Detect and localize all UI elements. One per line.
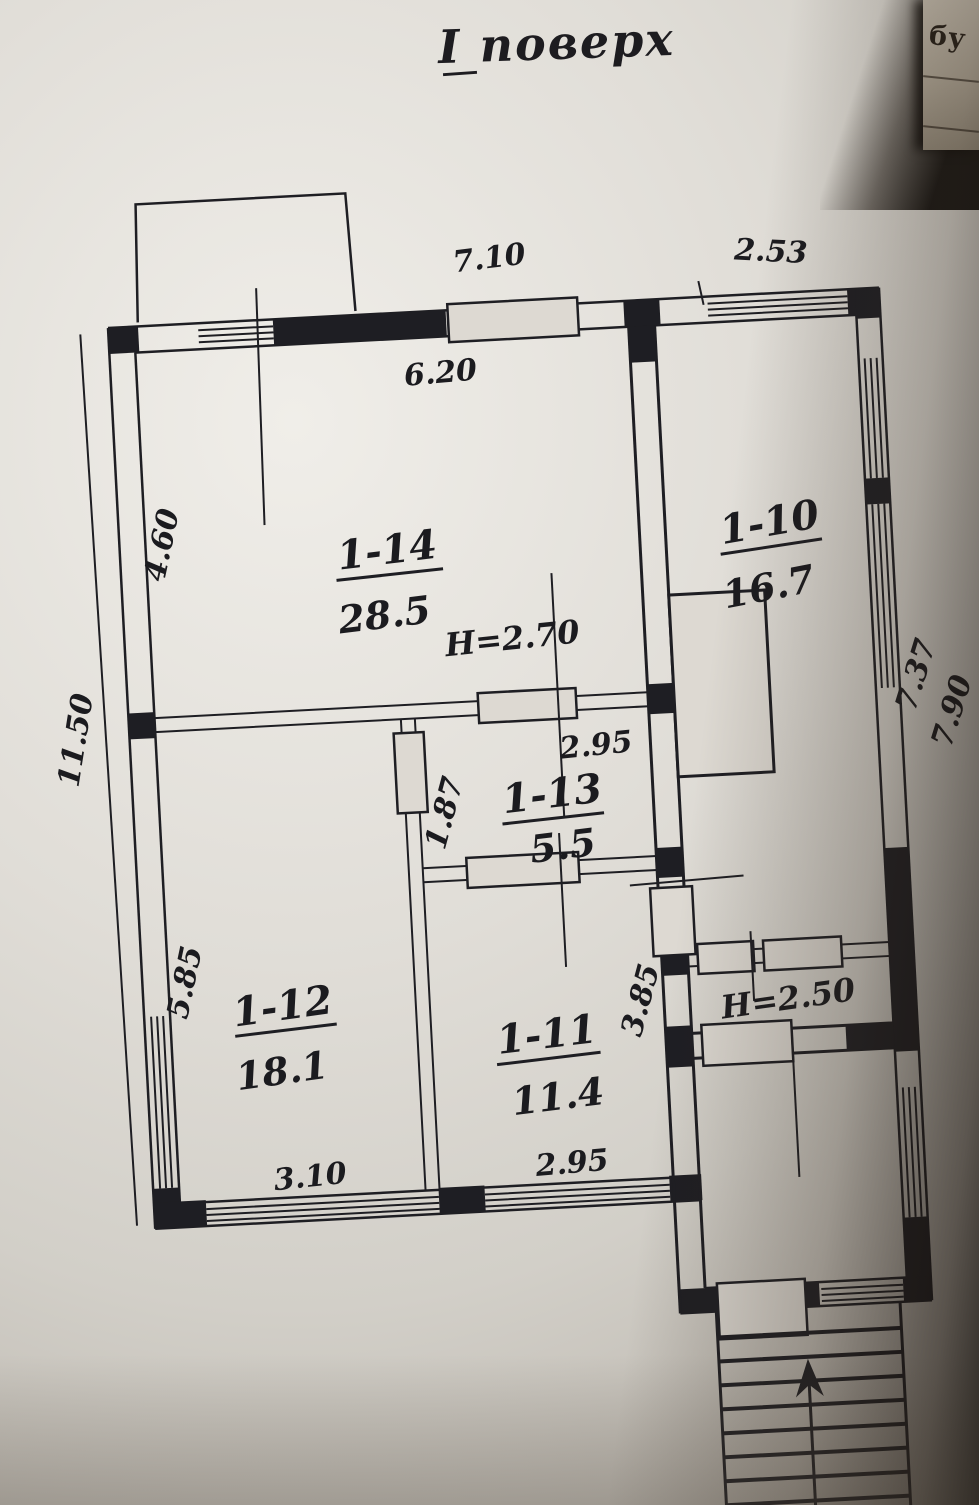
door-1-12-to-1-13 — [394, 732, 428, 813]
floor-plan-drawing: 7.10 2.53 6.20 1-14 28.5 1-10 16.7 H=2.7… — [0, 0, 979, 1505]
dim-room13-width: 2.95 — [557, 724, 634, 767]
neighbor-page-line — [923, 75, 979, 83]
room-1-14-area: 28.5 — [335, 586, 433, 642]
neighbor-page-text: бу — [927, 20, 968, 55]
door-in-bearing-wall — [650, 886, 696, 956]
dim-room12-bottom: 3.10 — [272, 1156, 348, 1198]
terrace-outline — [132, 193, 356, 322]
neighbor-page-line — [923, 125, 979, 133]
neighbor-page-fragment: бу — [923, 0, 979, 150]
page-title: І поверх — [437, 12, 675, 74]
room-1-12-area: 18.1 — [233, 1042, 331, 1099]
room-1-13-area: 5.5 — [527, 819, 598, 872]
window-top-right — [708, 296, 848, 315]
dim-top-main: 7.10 — [451, 237, 528, 281]
door-vestibule-to-stairs — [701, 1020, 793, 1066]
chimney-block — [669, 590, 774, 777]
door-1-14-to-1-13 — [478, 688, 577, 723]
dim-left-total: 11.50 — [52, 691, 101, 789]
room-1-10-id: 1-10 — [716, 490, 823, 554]
window-right-lower — [903, 1087, 922, 1217]
dim-right-outer: 7.90 — [925, 671, 979, 751]
dim-room11-bottom: 2.95 — [533, 1143, 610, 1184]
door-vestibule-second — [763, 936, 842, 970]
window-left — [151, 1016, 172, 1188]
window-right-upper — [865, 358, 883, 478]
door-1-10-to-vestibule — [697, 941, 754, 974]
dim-room11-right: 3.85 — [615, 960, 668, 1040]
balcony-door — [447, 297, 579, 342]
height-stair-hall: H=2.50 — [718, 970, 858, 1027]
window-top-left — [198, 326, 274, 342]
dim-room14-width: 6.20 — [403, 353, 479, 394]
room-1-10-area: 16.7 — [719, 555, 818, 617]
window-bottom-right — [821, 1285, 904, 1301]
dim-top-right: 2.53 — [733, 232, 809, 271]
room-1-11-area: 11.4 — [509, 1068, 606, 1124]
entrance-door — [717, 1279, 808, 1340]
height-main: H=2.70 — [442, 612, 581, 664]
